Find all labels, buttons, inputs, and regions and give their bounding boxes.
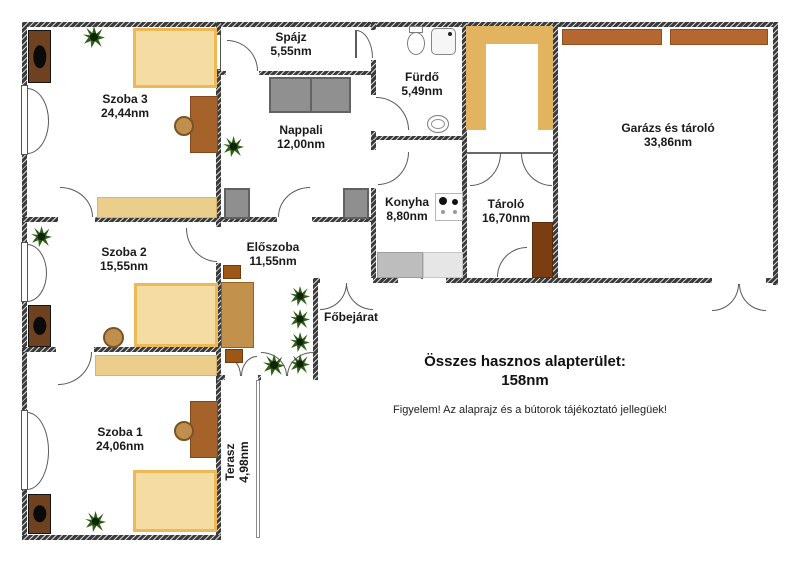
room-label-spajz: Spájz 5,55nm bbox=[247, 30, 335, 58]
room-label-tarolo: Tároló 16,70nm bbox=[462, 197, 550, 225]
burner bbox=[453, 210, 457, 214]
bed bbox=[134, 283, 218, 347]
window-sash-arc bbox=[27, 88, 49, 121]
office-chair bbox=[174, 421, 194, 441]
total-area-value: 158nm bbox=[390, 371, 660, 390]
kitchen-counter bbox=[423, 252, 463, 278]
plant bbox=[290, 309, 310, 329]
chair bbox=[103, 327, 124, 348]
door-opening bbox=[226, 71, 259, 75]
room-name: Fürdő bbox=[378, 70, 466, 84]
bed bbox=[133, 470, 217, 532]
room-name: Spájz bbox=[247, 30, 335, 44]
floor-plan: Szoba 3 24,44nm Spájz 5,55nm Nappali 12,… bbox=[0, 0, 800, 562]
room-area: 8,80nm bbox=[363, 209, 451, 223]
door-arc bbox=[470, 153, 501, 186]
door-opening bbox=[58, 217, 95, 222]
room-name: Garázs és tároló bbox=[578, 121, 758, 135]
room-name: Szoba 1 bbox=[76, 425, 164, 439]
door-opening bbox=[371, 150, 376, 188]
room-area: 15,55nm bbox=[80, 259, 168, 273]
wall bbox=[553, 22, 558, 283]
room-area: 24,44nm bbox=[81, 106, 169, 120]
room-label-nappali: Nappali 12,00nm bbox=[257, 123, 345, 151]
desk bbox=[190, 96, 218, 153]
entrance-door-arc bbox=[346, 283, 373, 310]
wall bbox=[313, 278, 318, 380]
room-label-konyha: Konyha 8,80nm bbox=[363, 195, 451, 223]
storage-unit bbox=[538, 26, 553, 130]
total-area-summary: Összes hasznos alapterület: 158nm bbox=[390, 352, 660, 390]
wall bbox=[371, 136, 467, 140]
door-arc bbox=[376, 97, 409, 130]
wardrobe bbox=[28, 30, 51, 83]
room-name: Nappali bbox=[257, 123, 345, 137]
door-opening bbox=[712, 278, 766, 283]
window-sash-arc bbox=[27, 451, 49, 490]
total-area-title: Összes hasznos alapterület: bbox=[390, 352, 660, 371]
room-name: Előszoba bbox=[229, 240, 317, 254]
window-sash-arc bbox=[27, 244, 47, 273]
dresser bbox=[97, 197, 217, 218]
shower-tray bbox=[431, 28, 456, 55]
room-name: Szoba 2 bbox=[80, 245, 168, 259]
storage-unit bbox=[466, 26, 486, 130]
garage-door-arc bbox=[739, 284, 766, 311]
toilet bbox=[407, 32, 425, 55]
garage-door-arc bbox=[712, 284, 739, 311]
hall-table bbox=[221, 282, 254, 348]
entrance-door-arc bbox=[320, 283, 347, 310]
wall bbox=[22, 22, 778, 27]
door-arc bbox=[521, 153, 552, 186]
wardrobe bbox=[28, 494, 51, 534]
wall bbox=[22, 535, 221, 540]
entrance-label: Főbejárat bbox=[316, 310, 386, 325]
window-sash-arc bbox=[27, 121, 49, 154]
cabinet bbox=[532, 222, 553, 278]
room-label-szoba1: Szoba 1 24,06nm bbox=[76, 425, 164, 453]
wall bbox=[773, 22, 778, 285]
door-arc bbox=[186, 228, 217, 262]
room-label-szoba3: Szoba 3 24,44nm bbox=[81, 92, 169, 120]
door-arc bbox=[241, 356, 257, 376]
wall bbox=[313, 278, 778, 283]
plant bbox=[83, 26, 105, 48]
window-sash-arc bbox=[27, 412, 49, 451]
office-chair bbox=[174, 116, 194, 136]
desk bbox=[190, 401, 218, 458]
plant bbox=[85, 511, 106, 532]
room-label-garazs: Garázs és tároló 33,86nm bbox=[578, 121, 758, 149]
plant bbox=[290, 332, 310, 352]
door-arc bbox=[58, 352, 92, 385]
disclaimer-note: Figyelem! Az alaprajz és a bútorok tájék… bbox=[370, 403, 690, 418]
room-label-eloszoba: Előszoba 11,55nm bbox=[229, 240, 317, 268]
room-label-szoba2: Szoba 2 15,55nm bbox=[80, 245, 168, 273]
plant bbox=[223, 136, 244, 157]
room-area: 24,06nm bbox=[76, 439, 164, 453]
room-name: Terasz bbox=[223, 407, 237, 517]
plant bbox=[290, 286, 310, 306]
bed bbox=[133, 28, 217, 88]
kitchen-counter bbox=[377, 252, 423, 278]
room-area: 11,55nm bbox=[229, 254, 317, 268]
door-arc bbox=[497, 247, 527, 277]
chair bbox=[225, 349, 243, 363]
door-leaf bbox=[355, 30, 357, 58]
room-area: 16,70nm bbox=[462, 211, 550, 225]
room-name: Szoba 3 bbox=[81, 92, 169, 106]
plant bbox=[31, 226, 52, 247]
terrace-railing bbox=[256, 380, 260, 538]
room-name: Konyha bbox=[363, 195, 451, 209]
door-arc bbox=[378, 152, 409, 185]
room-area: 12,00nm bbox=[257, 137, 345, 151]
room-area: 5,55nm bbox=[247, 44, 335, 58]
door-opening bbox=[277, 217, 312, 222]
garage-shelf bbox=[562, 29, 662, 45]
armchair bbox=[224, 188, 250, 219]
room-label-terasz: Terasz 4,98nm bbox=[223, 407, 253, 517]
window-sash-arc bbox=[27, 273, 47, 302]
room-area: 33,86nm bbox=[578, 135, 758, 149]
dresser bbox=[95, 355, 217, 376]
room-area: 4,98nm bbox=[237, 407, 251, 517]
burner bbox=[452, 199, 458, 205]
room-label-furdo: Fürdő 5,49nm bbox=[378, 70, 466, 98]
wardrobe bbox=[28, 305, 51, 347]
door-arc bbox=[60, 187, 93, 217]
room-name: Tároló bbox=[462, 197, 550, 211]
door-arc bbox=[278, 187, 310, 217]
wall bbox=[22, 347, 221, 352]
sofa bbox=[269, 77, 351, 113]
garage-shelf bbox=[670, 29, 768, 45]
washbasin bbox=[427, 115, 449, 133]
room-area: 5,49nm bbox=[378, 84, 466, 98]
